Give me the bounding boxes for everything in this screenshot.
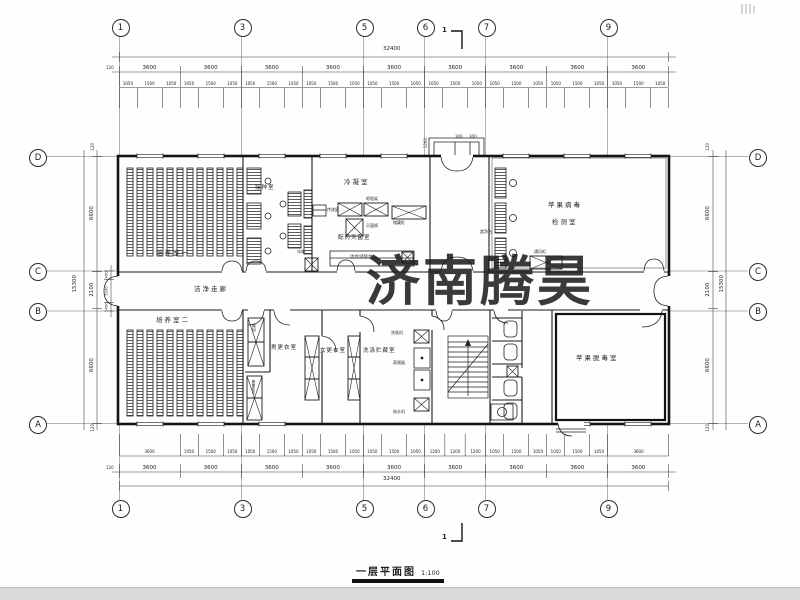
grid-bubble-label: B [755,307,761,317]
equip-label-autoclave: 灭菌锅 [366,224,378,228]
dim-value: 2100 [703,271,714,308]
grid-bubble-label: 9 [606,504,611,514]
floor-plan-page: 1 3 5 6 7 9 1 3 5 6 7 9 D C B A D C B A … [0,0,800,600]
room-label-culture1: 培养室一 [156,250,190,257]
equip-label-pass-window: 传递窗 [327,208,339,212]
room-label-prep-steril: 配药灭菌室 [338,236,371,242]
dim-value: 1050 [302,82,320,86]
dim-value: 3600 [119,66,180,72]
page-bottom-bar [0,587,800,600]
dim-value: 1050 [529,450,547,454]
dim-value: 3600 [608,450,669,454]
dim-right-overall: 15300 [720,275,726,293]
grid-bubble-label: 5 [362,23,367,33]
grid-bubble-top-9: 9 [600,19,618,37]
dim-value: 1050 [547,450,565,454]
dim-value: 1050 [346,82,364,86]
dim-value: 1500 [198,450,223,454]
dim-value: 3600 [302,466,363,472]
grid-bubble-left-D: D [29,149,47,167]
dim-value: 1050 [364,82,382,86]
grid-bubble-bottom-9: 9 [600,500,618,518]
equip-label-hand-sanitizer: 手消毒器 [252,380,256,394]
dim-edge-120: 120 [91,143,95,151]
dim-col-right-chain: 660021006600 [703,156,714,423]
dim-value: 1050 [590,82,608,86]
dim-edge-120: 120 [106,466,114,470]
dim-entrance-step: 300 [469,135,477,139]
section-mark-bottom: 1 [442,534,447,541]
grid-bubble-label: 1 [118,504,123,514]
dim-value: 1050 [425,82,443,86]
dim-value: 6600 [703,156,714,271]
dim-value: 1050 [547,82,565,86]
dim-row-top-bays: 360036003600360036003600360036003600 [119,64,669,71]
dim-value: 1050 [241,82,259,86]
dim-col-left-chain: 660021006600 [87,156,98,423]
dim-value: 1500 [565,450,590,454]
equip-label-air-shower: 风淋 [252,324,256,332]
dim-value: 1500 [442,82,467,86]
grid-bubble-top-6: 6 [417,19,435,37]
dim-value: 1050 [346,450,364,454]
grid-bubble-left-B: B [29,303,47,321]
dim-value: 3600 [608,466,669,472]
dim-entrance-depth: 1200 [424,138,428,148]
dim-value: 1500 [381,82,406,86]
grid-bubble-bottom-1: 1 [112,500,130,518]
dim-value: 3600 [425,466,486,472]
grid-bubble-bottom-3: 3 [234,500,252,518]
dim-value: 3600 [547,66,608,72]
grid-bubble-left-A: A [29,416,47,434]
room-label-inoculation: 接种室 [255,186,275,192]
dim-value: 1050 [486,450,504,454]
dim-value: 3600 [241,66,302,72]
grid-bubble-label: 5 [362,504,367,514]
dim-value: 450 [102,302,111,311]
grid-bubble-bottom-6: 6 [417,500,435,518]
dim-value: 3600 [180,66,241,72]
dim-value: 450 [102,271,111,280]
dim-value: 1050 [468,82,486,86]
grid-bubble-label: 3 [240,23,245,33]
grid-bubble-top-1: 1 [112,19,130,37]
dim-col-left-corridor: 4501200450 [102,271,111,311]
dim-value: 1050 [241,450,259,454]
dim-value: 1050 [285,450,303,454]
grid-bubble-label: 3 [240,504,245,514]
dim-value: 3600 [119,466,180,472]
equip-label-storage-cab: 储藏柜 [393,221,405,225]
dim-value: 1200 [102,280,111,303]
dim-value: 1050 [302,450,320,454]
dim-value: 3600 [608,66,669,72]
drawing-title: 一层平面图 1:100 [352,563,444,580]
grid-bubble-label: B [35,307,41,317]
dim-value: 6600 [703,308,714,423]
grid-bubble-top-5: 5 [356,19,374,37]
room-label-clean-corridor: 洁净走廊 [194,286,228,293]
drawing-title-text: 一层平面图 [356,563,416,578]
watermark-text: 济南腾昊 [366,252,594,311]
dim-value: 1050 [223,450,241,454]
dim-edge-120: 120 [91,424,95,432]
dim-value: 3600 [363,466,424,472]
dim-value: 2100 [87,271,98,308]
dim-value: 1050 [407,450,425,454]
grid-bubble-right-B: B [749,303,767,321]
room-label-men-change: 男更衣室 [271,346,297,352]
dim-value: 1050 [223,82,241,86]
dim-entrance-step: 300 [455,135,463,139]
entrance-canopy [429,138,484,155]
dim-value: 3600 [302,66,363,72]
grid-bubble-label: 7 [484,23,489,33]
stairs [448,336,488,398]
room-label-women-change: 女更衣室 [320,349,346,355]
dim-top-overall: 32400 [383,47,401,53]
dim-value: 1200 [425,450,445,454]
equip-label-water-purifier: 纯水机 [393,410,405,414]
dim-value: 3600 [425,66,486,72]
dim-value: 1500 [381,450,406,454]
dim-value: 1500 [137,82,162,86]
dim-value: 1050 [486,82,504,86]
dim-value: 1050 [180,82,198,86]
room-label-wash-storage: 洗涤贮藏室 [363,349,396,355]
room-label-virus-test-1: 苹果病毒 [548,202,582,209]
grid-bubble-label: 6 [423,504,428,514]
dim-edge-120: 120 [706,143,710,151]
dim-value: 1500 [320,82,345,86]
dim-value: 3600 [486,66,547,72]
dim-left-overall: 15300 [73,275,79,293]
grid-bubble-label: C [755,267,761,277]
dim-value: 6600 [87,156,98,271]
grid-bubble-label: 1 [118,23,123,33]
grid-bubble-label: D [755,153,762,163]
dim-value: 1050 [180,450,198,454]
dim-value: 1050 [608,82,626,86]
grid-bubble-right-C: C [749,263,767,281]
dim-row-bottom-sub: 3600105015001050105015001050105015001050… [119,448,669,454]
dim-value: 1050 [651,82,669,86]
grid-bubble-right-A: A [749,416,767,434]
dim-value: 1050 [407,82,425,86]
grid-bubble-label: D [35,153,42,163]
dim-value: 1050 [590,450,608,454]
dim-value: 1500 [259,82,284,86]
dim-value: 1200 [465,450,485,454]
grid-bubble-right-D: D [749,149,767,167]
dim-value: 1500 [626,82,651,86]
section-mark-top: 1 [442,27,447,34]
dim-value: 3600 [547,466,608,472]
dim-value: 1200 [445,450,465,454]
dim-value: 3600 [119,450,180,454]
dim-value: 3600 [180,466,241,472]
dim-value: 1500 [259,450,284,454]
grid-bubble-bottom-7: 7 [478,500,496,518]
grid-bubble-label: C [35,267,41,277]
equip-label-fridge: 冰箱 [297,250,305,254]
room-label-detox: 苹果脱毒室 [576,355,619,362]
dim-edge-120: 120 [706,424,710,432]
room-label-virus-test-2: 检测室 [552,219,578,226]
equip-label-clean-bench: 超净台 [480,230,492,234]
dim-value: 1050 [119,82,137,86]
grid-bubble-label: A [35,420,41,430]
dim-value: 1050 [162,82,180,86]
equip-label-distiller: 蒸馏器 [393,361,405,365]
drawing-title-scale: 1:100 [421,569,440,577]
dim-value: 3600 [241,466,302,472]
dim-row-top-sub: 1050150010501050150010501050150010501050… [119,80,669,86]
grid-bubble-label: A [755,420,761,430]
grid-bubble-top-3: 3 [234,19,252,37]
dim-edge-120: 120 [106,66,114,70]
dim-value: 1500 [504,450,529,454]
room-label-condensation: 冷凝室 [344,179,370,186]
room-label-culture2: 培养室二 [156,317,190,324]
dim-value: 1050 [363,450,381,454]
dim-value: 1500 [320,450,345,454]
grid-bubble-label: 9 [606,23,611,33]
dim-value: 6600 [87,308,98,423]
stool-circles [265,178,517,257]
scan-marks [742,4,754,14]
dim-row-bottom-bays: 360036003600360036003600360036003600 [119,464,669,471]
grid-bubble-label: 7 [484,504,489,514]
dim-value: 3600 [486,466,547,472]
dim-value: 1050 [529,82,547,86]
dim-value: 1500 [504,82,529,86]
dim-value: 1500 [198,82,223,86]
dim-value: 1050 [285,82,303,86]
dim-bottom-overall: 32400 [383,477,401,483]
grid-bubble-bottom-5: 5 [356,500,374,518]
equip-label-bottle-rack: 晾瓶架 [366,197,378,201]
grid-bubble-top-7: 7 [478,19,496,37]
dim-value: 1500 [565,82,590,86]
grid-bubble-left-C: C [29,263,47,281]
grid-bubble-label: 6 [423,23,428,33]
equip-label-bottle-washer: 洗瓶机 [391,331,403,335]
dim-value: 3600 [363,66,424,72]
